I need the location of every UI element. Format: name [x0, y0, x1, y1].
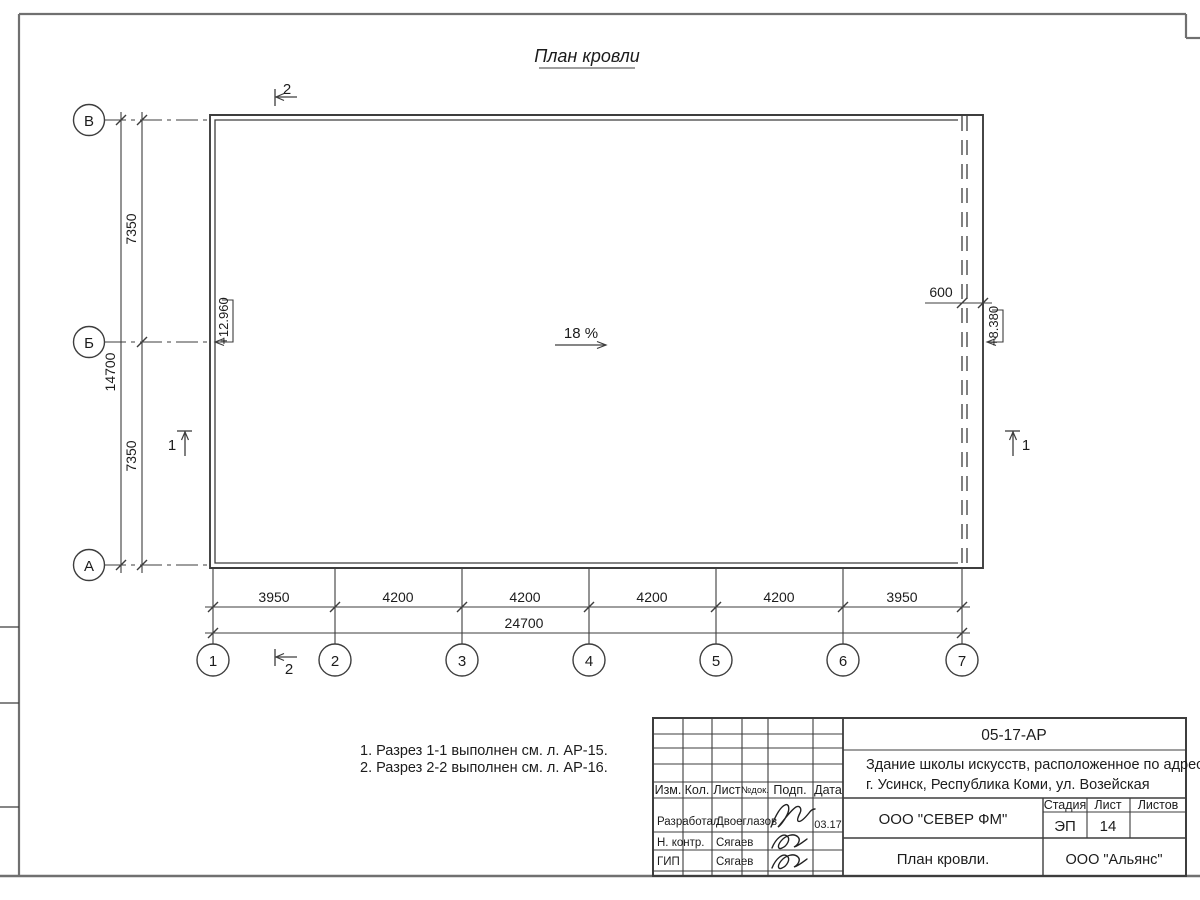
stamp-org: ООО "Альянс"	[1066, 852, 1163, 868]
grid-label: 6	[839, 653, 847, 670]
stamp-stage-value: ЭП	[1054, 818, 1076, 835]
grid-label: 5	[712, 653, 720, 670]
stamp-row3-role: ГИП	[657, 856, 680, 868]
stamp-company: ООО "СЕВЕР ФМ"	[879, 811, 1008, 828]
stamp-row1-role: Разработал	[657, 816, 720, 828]
stamp-sheet-value: 14	[1100, 818, 1117, 835]
dim-text: 4200	[763, 589, 794, 605]
dim-text: 3950	[258, 589, 289, 605]
elevation-text: +8.380	[986, 306, 1001, 346]
stamp-address-line1: Здание школы искусств, расположенное по …	[866, 757, 1200, 773]
stamp-col-ndok: №док.	[741, 785, 769, 796]
elevation-left: +12.960	[215, 297, 233, 345]
note-line: 1. Разрез 1-1 выполнен см. л. АР-15.	[360, 743, 608, 759]
grid-label: Б	[84, 335, 94, 352]
stamp-drawing-name: План кровли.	[897, 851, 990, 868]
roof-plan-drawing: План кровли В Б А 1 2 3	[0, 0, 1200, 900]
section-label: 1	[168, 437, 176, 454]
stamp-row2-role: Н. контр.	[657, 837, 704, 849]
signature-scribble-gip	[772, 855, 807, 869]
dim-text: 4200	[382, 589, 413, 605]
dim-bottom: 3950 4200 4200 4200 4200 3950 24700	[205, 589, 970, 638]
stamp-doc-number: 05-17-АР	[981, 727, 1046, 744]
drawing-title: План кровли	[534, 46, 640, 66]
elevation-text: +12.960	[216, 297, 231, 344]
stamp-sheets-label: Листов	[1138, 798, 1179, 812]
dim-text: 7350	[123, 213, 139, 244]
grid-label: 2	[331, 653, 339, 670]
elevation-right: +8.380	[986, 306, 1003, 346]
drawing-sheet: План кровли В Б А 1 2 3	[0, 0, 1200, 900]
stamp-sheet-label: Лист	[1094, 798, 1121, 812]
section-mark-2-top: 2	[275, 81, 297, 106]
dim-text: 7350	[123, 440, 139, 471]
section-mark-1-left: 1	[168, 431, 192, 456]
grid-cols: 1 2 3 4 5 6 7	[197, 568, 978, 676]
stamp-row1-date: 03.17	[814, 819, 842, 831]
stamp-row3-name: Сягаев	[716, 856, 753, 868]
stamp-col-data: Дата	[814, 783, 842, 797]
stamp-col-kol: Кол.	[685, 783, 710, 797]
stamp-col-izm: Изм.	[655, 783, 682, 797]
grid-label: 3	[458, 653, 466, 670]
grid-label: В	[84, 113, 94, 130]
dim-text: 4200	[636, 589, 667, 605]
grid-label: А	[84, 558, 94, 575]
dim-text: 14700	[102, 352, 118, 391]
grid-label: 7	[958, 653, 966, 670]
note-line: 2. Разрез 2-2 выполнен см. л. АР-16.	[360, 760, 608, 776]
section-label: 1	[1022, 437, 1030, 454]
notes: 1. Разрез 1-1 выполнен см. л. АР-15. 2. …	[360, 743, 608, 776]
section-label: 2	[285, 661, 293, 678]
dim-text: 24700	[505, 615, 544, 631]
signature-scribble-razrabotal	[771, 805, 815, 827]
stamp-row1-name: Двоеглазов	[716, 816, 777, 828]
dim-text: 4200	[509, 589, 540, 605]
grid-label: 1	[209, 653, 217, 670]
stamp-stage-label: Стадия	[1044, 798, 1087, 812]
section-mark-2-bottom: 2	[275, 649, 297, 678]
slope-annotation: 18 %	[555, 325, 606, 349]
signature-scribble-nkontr	[772, 835, 807, 849]
dim-text: 3950	[886, 589, 917, 605]
stamp-row2-name: Сягаев	[716, 837, 753, 849]
section-mark-1-right: 1	[1005, 431, 1030, 456]
dim-overhang: 600	[925, 284, 992, 308]
stamp-address-line2: г. Усинск, Республика Коми, ул. Возейска…	[866, 777, 1150, 793]
stamp-signatures	[771, 805, 815, 869]
dim-text: 600	[929, 284, 953, 300]
stamp-col-list: Лист	[713, 783, 740, 797]
slope-label: 18 %	[564, 325, 598, 342]
stamp-col-podp: Подп.	[773, 783, 806, 797]
grid-label: 4	[585, 653, 593, 670]
section-label: 2	[283, 81, 291, 98]
